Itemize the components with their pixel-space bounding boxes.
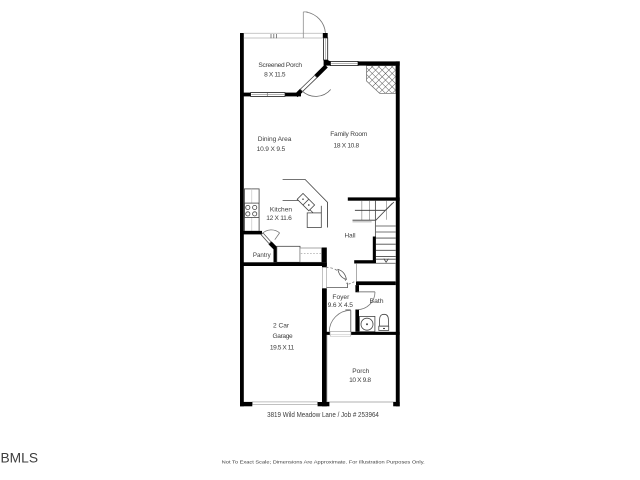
svg-text:Kitchen: Kitchen [270, 207, 293, 214]
svg-text:12 X 11.6: 12 X 11.6 [266, 215, 292, 222]
svg-text:2 Car: 2 Car [273, 323, 290, 330]
svg-text:Hall: Hall [345, 233, 357, 240]
svg-text:Garage: Garage [273, 333, 294, 340]
svg-text:10 X 9.8: 10 X 9.8 [349, 377, 371, 384]
svg-text:Family Room: Family Room [330, 131, 368, 138]
svg-text:9.6 X 4.5: 9.6 X 4.5 [328, 302, 354, 309]
svg-text:Bath: Bath [370, 298, 384, 305]
svg-text:Foyer: Foyer [332, 294, 350, 301]
svg-text:Dining Area: Dining Area [258, 136, 292, 143]
svg-text:Pantry: Pantry [253, 252, 271, 259]
svg-text:Not To Exact Scale; Dimensions: Not To Exact Scale; Dimensions Are Appro… [222, 460, 425, 465]
svg-text:19.5 X 11: 19.5 X 11 [270, 344, 295, 351]
svg-text:Porch: Porch [352, 368, 369, 375]
svg-text:8 X 11.5: 8 X 11.5 [264, 72, 286, 79]
svg-text:BMLS: BMLS [1, 451, 39, 466]
svg-text:18 X 10.8: 18 X 10.8 [334, 142, 360, 149]
svg-text:3819 Wild Meadow Lane / Job #: 3819 Wild Meadow Lane / Job # 253964 [267, 410, 379, 419]
svg-text:Screened Porch: Screened Porch [258, 62, 302, 69]
svg-text:10.9 X 9.5: 10.9 X 9.5 [257, 146, 286, 153]
